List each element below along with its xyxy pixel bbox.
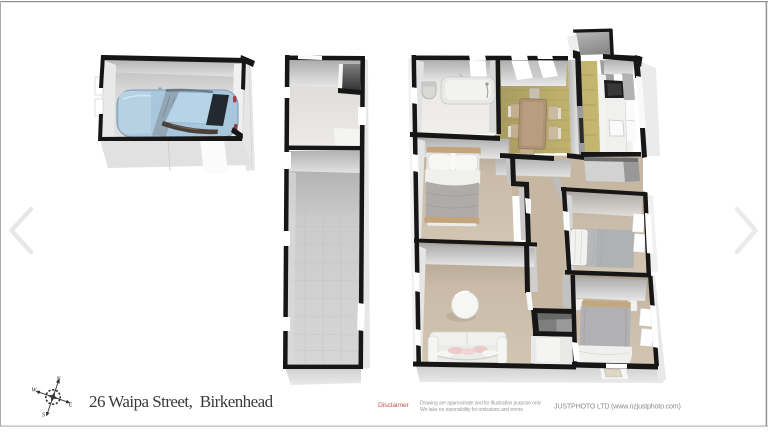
svg-text:E: E	[68, 403, 73, 409]
svg-text:S: S	[42, 413, 45, 419]
svg-text:Disclaimer: Disclaimer	[378, 402, 410, 409]
svg-text:26 Waipa Street, Birkenhead: 26 Waipa Street, Birkenhead	[89, 392, 274, 411]
svg-text:JUSTPHOTO LTD (www.nzjustphoto: JUSTPHOTO LTD (www.nzjustphoto.com)	[554, 403, 681, 411]
svg-text:Drawing are approximate and fo: Drawing are approximate and for Illustra…	[420, 401, 541, 407]
svg-text:We take no reponsibility for o: We take no reponsibility for omissions a…	[420, 407, 524, 413]
